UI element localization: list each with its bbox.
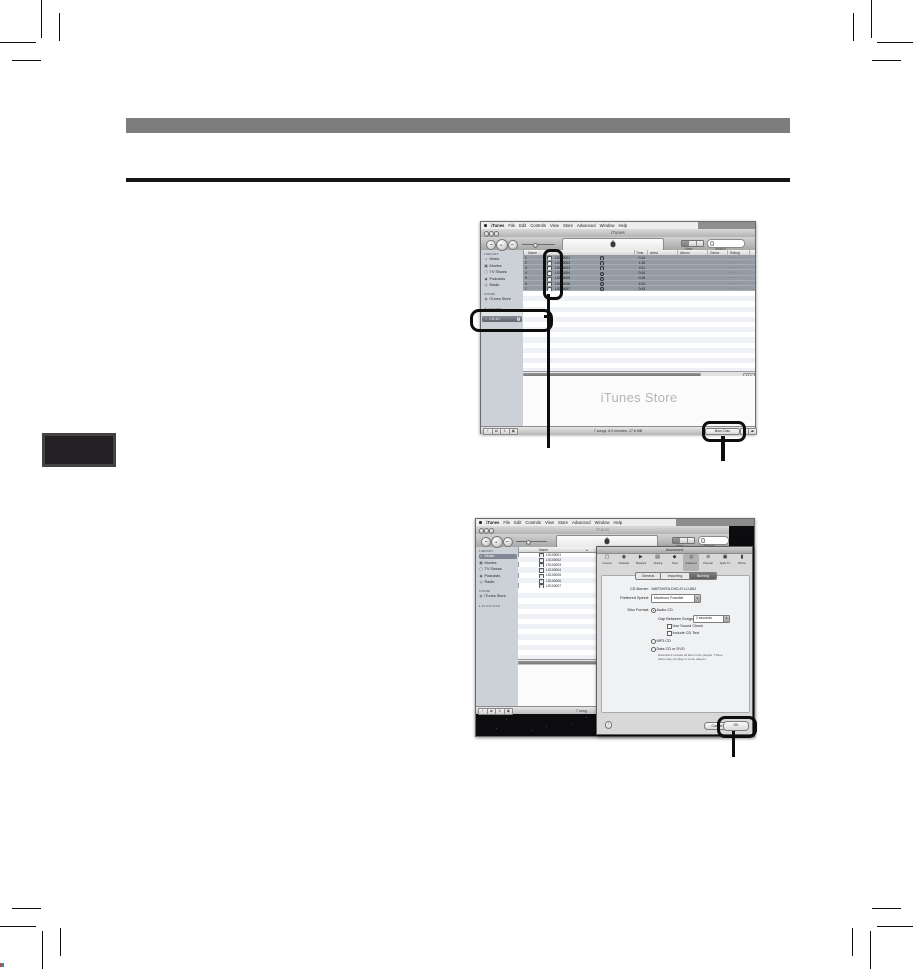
dropdown-stepper-icon: ⇅ (694, 595, 700, 602)
window-title: iTunes (481, 230, 755, 235)
advanced-icon: ◎ (683, 554, 699, 561)
sidebar-item-radio[interactable]: ◎Radio (479, 580, 517, 585)
sidebar-item-label: TV Shows (485, 567, 502, 571)
callout-playlist (470, 309, 553, 333)
menu-itunes[interactable]: iTunes (486, 519, 499, 526)
pref-tab-general[interactable]: ▢General (599, 554, 615, 571)
sidebar-item-label: Radio (485, 580, 495, 584)
desktop-star (546, 726, 547, 727)
chapter-tab (42, 433, 116, 467)
radio-icon: ◎ (484, 283, 488, 287)
next-button[interactable]: ▸▸ (503, 537, 513, 547)
preferred-speed-label: Preferred Speed: (603, 596, 649, 600)
pref-tab-label: Advanced (684, 561, 698, 565)
crop-mark-1 (59, 13, 60, 41)
preferences-toolbar: ▢General◉Podcasts▶Playback▤Sharing◆Store… (599, 554, 750, 571)
dropdown-stepper-icon: ⇅ (723, 616, 729, 622)
preferred-speed-dropdown[interactable]: Maximum Possible ⇅ (651, 594, 701, 603)
apple-logo-icon (611, 241, 616, 247)
crop-mark-15 (852, 928, 853, 956)
tab-importing[interactable]: Importing (661, 573, 690, 580)
view-cover-button[interactable] (688, 538, 694, 544)
desktop-star (586, 717, 587, 718)
pref-tab-label: General (600, 561, 614, 565)
include-cd-text-checkbox[interactable] (667, 631, 672, 636)
burning-tab-group: GeneralImportingBurning (635, 572, 717, 581)
callout-ok-button (717, 716, 757, 738)
callout-line-checkbox (547, 294, 551, 448)
crop-mark-14 (870, 931, 871, 969)
gap-between-songs-label: Gap Between Songs: (658, 617, 694, 621)
menu-view[interactable]: View (550, 222, 559, 229)
gap-value: 2 seconds (696, 616, 712, 620)
dialog-title: Advanced (597, 547, 752, 554)
preferred-speed-value: Maximum Possible (654, 596, 683, 600)
menu-store[interactable]: Store (558, 519, 568, 526)
pref-tab-label: Playback (634, 561, 648, 565)
use-sound-check-checkbox[interactable] (667, 624, 672, 629)
data-cd-note-line2: discs may not play in some players. (658, 657, 707, 661)
data-cd-note-line1: Data discs include all files in the play… (658, 653, 722, 657)
volume-slider[interactable] (516, 541, 547, 542)
parental-icon: ⊘ (700, 554, 716, 561)
itunes-store-banner-text: iTunes Store (523, 390, 755, 405)
pref-tab-playback[interactable]: ▶Playback (633, 554, 649, 571)
pref-tab-label: Apple TV (718, 561, 732, 565)
registration-color-dot (0, 963, 4, 967)
crop-mark-2 (0, 42, 36, 43)
view-list-button[interactable] (673, 538, 680, 544)
sidebar-item-itunes-store[interactable]: ◍iTunes Store (479, 594, 517, 599)
search-input[interactable] (707, 239, 745, 248)
sidebar-item-label: Radio (490, 283, 500, 287)
sidebar-group-library: LIBRARY (484, 252, 499, 256)
store-icon: ◆ (667, 554, 683, 561)
view-cover-button[interactable] (697, 241, 703, 247)
view-album-button[interactable] (689, 241, 696, 247)
sidebar-item-music[interactable]: ♫Music (479, 554, 517, 559)
crop-mark-0 (41, 0, 42, 38)
itunes-store-banner[interactable]: iTunes Store (523, 376, 755, 426)
itunes-store-icon: ◍ (479, 594, 483, 598)
menu-advanced[interactable]: Advanced (572, 519, 591, 526)
crop-mark-9 (0, 926, 36, 927)
callout-line-burn-disc (721, 436, 725, 461)
music-icon: ♫ (479, 554, 483, 558)
lcd-display (562, 238, 664, 251)
pref-tab-advanced[interactable]: ◎Advanced (683, 554, 699, 571)
apple-menu-icon[interactable] (484, 224, 487, 228)
apple-logo-icon (605, 538, 610, 544)
podcasts-icon: ◉ (484, 277, 488, 281)
sidebar-item-label: Music (485, 554, 495, 558)
sidebar-group-library: LIBRARY (479, 549, 494, 553)
sidebar-item-movies[interactable]: ▦Movies (484, 263, 522, 268)
apple-menu-icon[interactable] (479, 521, 482, 525)
crop-mark-7 (872, 60, 901, 61)
pref-tab-apple-tv[interactable]: ▣Apple TV (717, 554, 733, 571)
desktop-star (571, 723, 572, 724)
crop-mark-5 (853, 13, 854, 41)
movies-icon: ▦ (479, 561, 483, 565)
sidebar-item-label: Movies (485, 561, 497, 565)
sidebar-group-store: STORE (484, 292, 495, 296)
sidebar-item-label: Podcasts (490, 277, 506, 281)
podcasts-icon: ◉ (479, 574, 483, 578)
screenshot-itunes-preferences: iTunesFileEditControlsViewStoreAdvancedW… (475, 518, 755, 737)
general-icon: ▢ (599, 554, 615, 561)
sidebar-item-tv-shows[interactable]: ▢TV Shows (479, 567, 517, 572)
view-list-button[interactable] (682, 241, 689, 247)
tv-shows-icon: ▢ (479, 567, 483, 571)
sidebar-item-podcasts[interactable]: ◉Podcasts (479, 573, 517, 578)
view-album-button[interactable] (680, 538, 687, 544)
sidebar: LIBRARY♫Music▦Movies▢TV Shows◉Podcasts◎R… (476, 547, 519, 713)
pref-tab-sharing[interactable]: ▤Sharing (650, 554, 666, 571)
sidebar-item-label: TV Shows (490, 270, 507, 274)
playback-icon: ▶ (633, 554, 649, 561)
sidebar-item-music[interactable]: ♫Music (484, 257, 522, 262)
menu-edit[interactable]: Edit (514, 519, 521, 526)
pref-tab-label: Sharing (650, 561, 664, 565)
volume-knob[interactable] (533, 243, 538, 248)
sidebar-item-podcasts[interactable]: ◉Podcasts (484, 276, 522, 281)
crop-mark-6 (877, 42, 913, 43)
podcasts-icon: ◉ (616, 554, 632, 561)
music-icon: ♫ (484, 257, 488, 261)
help-button[interactable]: ? (605, 721, 613, 729)
crop-mark-13 (877, 926, 913, 927)
sidebar-item-label: iTunes Store (490, 297, 511, 301)
next-button[interactable]: ▸▸ (508, 240, 518, 250)
sidebar-item-label: Music (490, 257, 500, 261)
eject-button[interactable]: ⏏ (748, 428, 757, 435)
include-cd-text-label: Include CD Text (673, 631, 700, 635)
pref-tab-store[interactable]: ◆Store (667, 554, 683, 571)
previous-button[interactable]: ◂◂ (481, 537, 491, 547)
search-icon (701, 538, 706, 543)
menu-window[interactable]: Window (600, 222, 615, 229)
volume-slider[interactable] (522, 244, 555, 245)
apple-tv-icon: ▣ (717, 554, 733, 561)
pref-tab-label: Store (667, 561, 681, 565)
section-gray-bar (126, 118, 790, 133)
sidebar-item-label: Movies (490, 264, 502, 268)
use-sound-check-label: Use Sound Check (673, 624, 704, 628)
callout-line-ok (732, 731, 736, 757)
menu-help[interactable]: Help (619, 222, 628, 229)
desktop-star (506, 719, 507, 720)
menu-window[interactable]: Window (595, 519, 610, 526)
sidebar-item-itunes-store[interactable]: ◍iTunes Store (484, 297, 522, 302)
menu-advanced[interactable]: Advanced (577, 222, 596, 229)
menu-help[interactable]: Help (614, 519, 623, 526)
menu-file[interactable]: File (508, 222, 515, 229)
empty-rows (523, 291, 755, 371)
pref-tab-iphone[interactable]: ▮iPhone (734, 554, 750, 571)
crop-mark-3 (12, 60, 41, 61)
radio-icon: ◎ (479, 580, 483, 584)
pref-tab-label: iPhone (735, 561, 749, 565)
menu-edit[interactable]: Edit (519, 222, 526, 229)
cd-burner-label: CD Burner: (603, 587, 649, 591)
tv-shows-icon: ▢ (484, 270, 488, 274)
menu-controls[interactable]: Controls (525, 519, 541, 526)
section-rule (126, 178, 790, 182)
desktop-star (531, 730, 532, 731)
itunes-store-icon: ◍ (484, 297, 488, 301)
menu-file[interactable]: File (503, 519, 510, 526)
window-title: iTunes (476, 527, 729, 532)
callout-checkbox-column (543, 249, 564, 301)
show-artwork-button[interactable]: ▣ (504, 708, 514, 715)
data-cd-label: Data CD or DVD (657, 647, 685, 651)
menu-store[interactable]: Store (563, 222, 573, 229)
pref-tab-label: Podcasts (617, 561, 631, 565)
sidebar-item-movies[interactable]: ▦Movies (479, 560, 517, 565)
preferences-dialog: Advanced ▢General◉Podcasts▶Playback▤Shar… (596, 546, 753, 735)
play-button[interactable]: ▸ (491, 536, 503, 548)
sidebar-item-radio[interactable]: ◎Radio (484, 283, 522, 288)
sidebar-group-playlists: ▸ PLAYLISTS (479, 604, 500, 608)
menu-itunes[interactable]: iTunes (491, 222, 504, 229)
crop-mark-10 (42, 931, 43, 969)
gap-dropdown[interactable]: 2 seconds ⇅ (693, 615, 730, 623)
mp3-cd-label: MP3 CD (657, 639, 671, 643)
desktop-star (496, 728, 497, 729)
status-text: 7 song (576, 709, 594, 713)
pref-tab-parental[interactable]: ⊘Parental (700, 554, 716, 571)
manual-page: iTunesFileEditControlsViewStoreAdvancedW… (0, 0, 913, 969)
search-icon (710, 241, 715, 246)
sidebar-item-label: Podcasts (485, 574, 501, 578)
crop-mark-12 (872, 908, 901, 909)
crop-mark-11 (60, 928, 61, 956)
menu-bar-right-segment (676, 519, 754, 526)
tab-general[interactable]: General (636, 573, 661, 580)
sidebar-item-label: iTunes Store (485, 594, 506, 598)
iphone-icon: ▮ (734, 554, 750, 561)
movies-icon: ▦ (484, 264, 488, 268)
pref-tab-podcasts[interactable]: ◉Podcasts (616, 554, 632, 571)
audio-cd-label: Audio CD (657, 608, 673, 612)
menu-bar-right-segment (698, 222, 755, 229)
crop-mark-8 (12, 908, 41, 909)
volume-knob[interactable] (526, 540, 531, 545)
sidebar: LIBRARY♫Music▦Movies▢TV Shows◉Podcasts◎R… (481, 250, 524, 426)
sidebar-item-tv-shows[interactable]: ▢TV Shows (484, 270, 522, 275)
pref-tab-label: Parental (701, 561, 715, 565)
tab-burning[interactable]: Burning (690, 573, 716, 580)
menu-view[interactable]: View (545, 519, 554, 526)
play-button[interactable]: ▸ (496, 239, 508, 251)
previous-button[interactable]: ◂◂ (486, 240, 496, 250)
sharing-icon: ▤ (650, 554, 666, 561)
cd-burner-value: MATSHITA DVD-R UJ-85J (652, 587, 697, 591)
disc-format-label: Disc Format: (603, 608, 649, 612)
sidebar-group-store: STORE (479, 589, 490, 593)
menu-controls[interactable]: Controls (530, 222, 546, 229)
crop-mark-4 (871, 0, 872, 38)
